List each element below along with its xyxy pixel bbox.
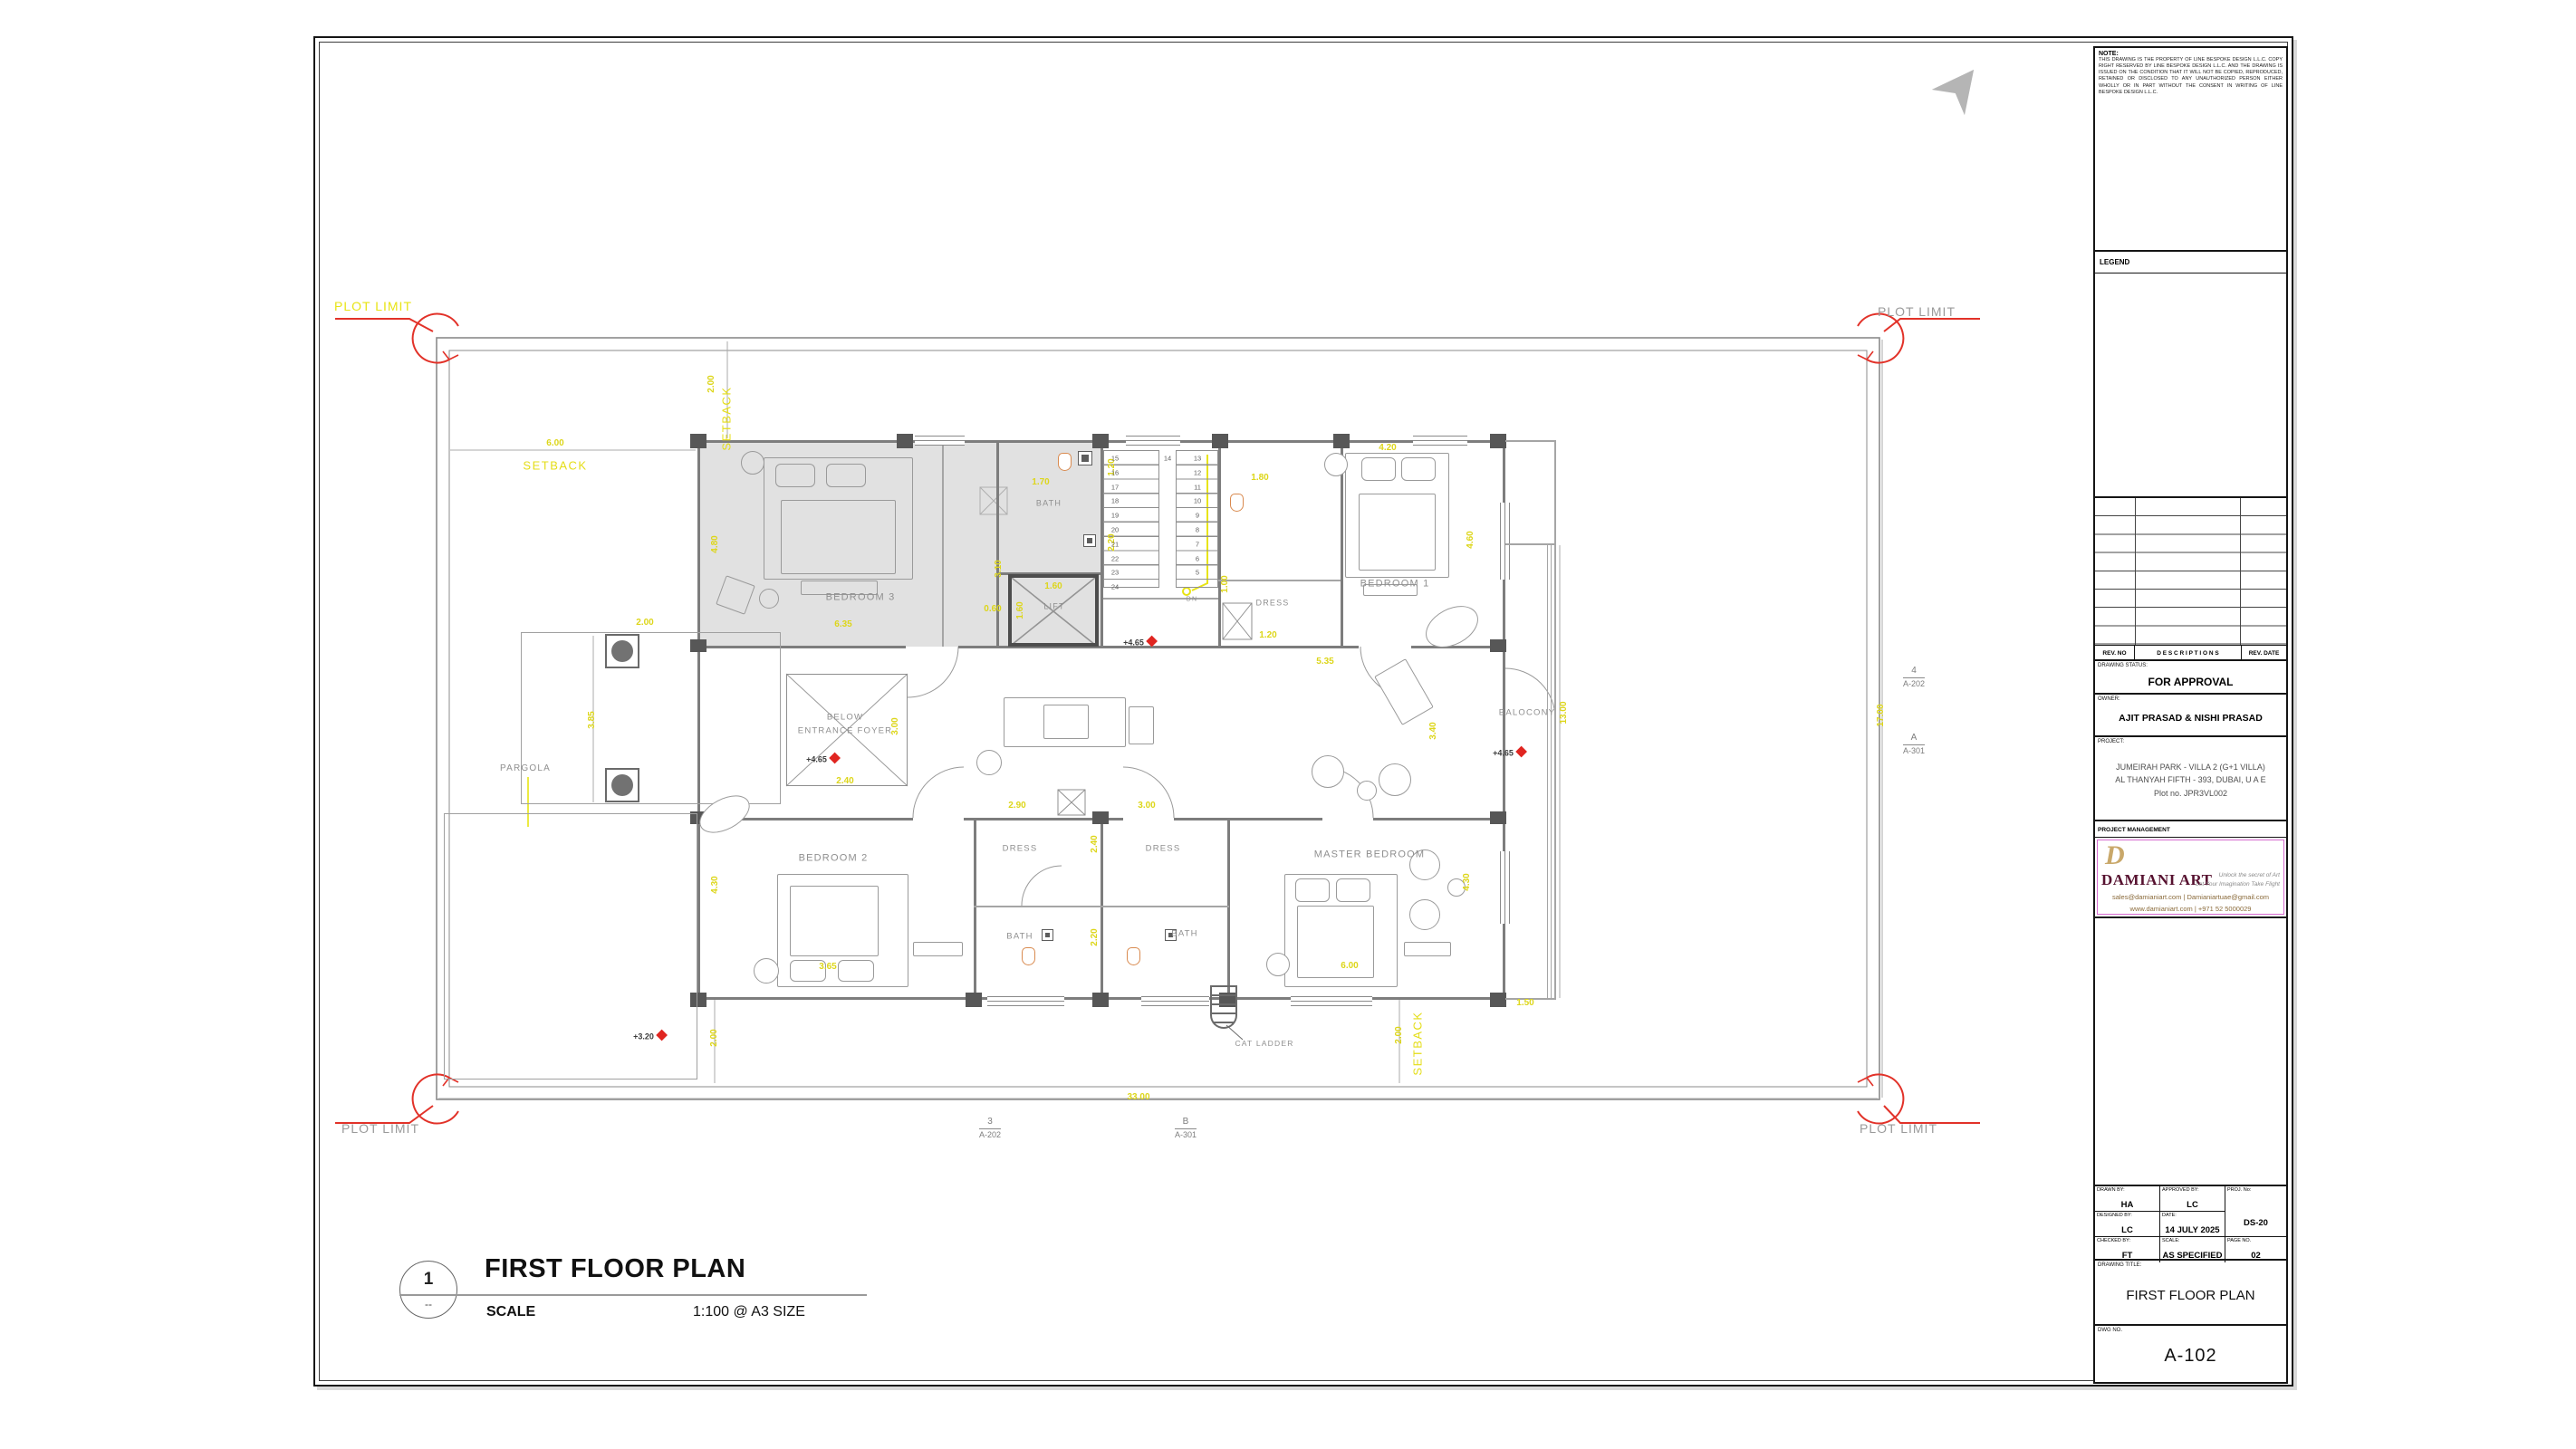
drawing-title-box: DRAWING TITLE: FIRST FLOOR PLAN xyxy=(2095,1261,2286,1326)
dimension-label: 33.00 xyxy=(1127,1093,1149,1102)
wall xyxy=(1101,906,1229,907)
toilet xyxy=(1058,453,1072,471)
level-marker: +3.20 xyxy=(633,1032,666,1041)
stool xyxy=(759,589,779,609)
window xyxy=(1500,851,1510,924)
stair-number: 17 xyxy=(1111,484,1119,491)
dimension-label: 2.00 xyxy=(707,375,716,392)
side-unit xyxy=(1129,706,1154,744)
pergola-column xyxy=(605,634,639,668)
room-label: DRESS xyxy=(1255,600,1289,608)
section-marker: AA-301 xyxy=(1903,734,1925,755)
window xyxy=(1413,436,1467,446)
dimension-label: 1.50 xyxy=(1516,999,1533,1008)
column xyxy=(897,434,913,448)
pillow xyxy=(838,960,874,982)
dimension-label: 2.40 xyxy=(836,777,853,786)
personnel-table: DRAWN BY:HA APPROVED BY:LC PROJ. No:DS-2… xyxy=(2095,1185,2286,1261)
room-label: BEDROOM 2 xyxy=(799,854,869,864)
room-label: BATH xyxy=(1036,500,1062,508)
view-number-bubble: 1 -- xyxy=(399,1261,457,1319)
revision-rows xyxy=(2095,498,2286,645)
approved-by-cell: APPROVED BY:LC xyxy=(2160,1186,2225,1212)
drawn-by-cell: DRAWN BY:HA xyxy=(2095,1186,2160,1212)
stair-number: 10 xyxy=(1194,498,1201,505)
proj-no-cell: PROJ. No:DS-20 xyxy=(2225,1186,2286,1237)
view-number-dash: -- xyxy=(400,1298,457,1310)
dimension-label: 6.00 xyxy=(1341,962,1358,971)
pillow xyxy=(1336,878,1370,902)
drawing-status-value: FOR APPROVAL xyxy=(2095,676,2286,688)
dimension-label: 2.00 xyxy=(1395,1026,1404,1043)
dimension-label: 3.85 xyxy=(588,711,597,728)
room-label: MASTER BEDROOM xyxy=(1314,850,1426,860)
wall xyxy=(1373,818,1505,820)
pillow xyxy=(775,464,815,487)
view-number: 1 xyxy=(400,1270,457,1290)
round-table xyxy=(1357,781,1377,801)
dimension-label: 3.40 xyxy=(1429,722,1438,739)
dimension-label: 1.60 xyxy=(1016,601,1025,619)
owner-label: OWNER: xyxy=(2098,696,2120,702)
side-table xyxy=(1324,453,1348,476)
dimension-label: 1.80 xyxy=(1251,474,1268,483)
level-diamond-icon xyxy=(1515,746,1527,758)
wall xyxy=(1101,818,1103,1000)
dimension-label: 3.00 xyxy=(1138,801,1155,811)
level-diamond-icon xyxy=(1146,636,1158,648)
balcony-rail xyxy=(1551,543,1552,1000)
window xyxy=(1126,436,1180,446)
shower-drain xyxy=(1078,451,1092,465)
column xyxy=(1092,811,1109,824)
setback-label: SETBACK xyxy=(721,386,733,450)
note-title: NOTE: xyxy=(2099,51,2283,57)
drawing-title-value: FIRST FLOOR PLAN xyxy=(2095,1288,2286,1303)
stair-number: 21 xyxy=(1111,541,1119,548)
column xyxy=(1212,434,1228,448)
pergola-column xyxy=(605,768,639,802)
dimension-label: 4.80 xyxy=(711,535,720,552)
room-label: CAT LADDER xyxy=(1235,1040,1293,1048)
window xyxy=(987,996,1064,1006)
dimension-label: 4.20 xyxy=(1379,444,1396,453)
wall xyxy=(1218,440,1221,647)
wall xyxy=(1218,580,1341,581)
project-label: PROJECT: xyxy=(2098,739,2124,744)
dimension-label: 2.40 xyxy=(1091,835,1100,852)
dimension-label: 4.60 xyxy=(1466,531,1475,548)
dimension-label: 3.65 xyxy=(819,963,836,972)
balcony-rail xyxy=(1554,543,1556,1000)
note-box: NOTE: THIS DRAWING IS THE PROPERTY OF LI… xyxy=(2095,48,2286,252)
terrace-edge xyxy=(1505,440,1556,442)
damiani-email: sales@damianiart.com | Damianiartuae@gma… xyxy=(2098,893,2283,901)
stair-number: 15 xyxy=(1111,455,1119,462)
owner-box: OWNER: AJIT PRASAD & NISHI PRASAD xyxy=(2095,695,2286,737)
project-box: PROJECT: JUMEIRAH PARK - VILLA 2 (G+1 VI… xyxy=(2095,737,2286,821)
plot-limit-label: PLOT LIMIT xyxy=(341,1122,419,1135)
project-management-label: PROJECT MANAGEMENT xyxy=(2095,821,2286,838)
mattress xyxy=(1297,906,1374,978)
sofa-cushion xyxy=(1043,705,1089,739)
view-scale-label: SCALE xyxy=(486,1304,535,1320)
dimension-label: 2.00 xyxy=(636,619,653,628)
stair-number: 9 xyxy=(1196,512,1199,519)
level-marker: +4.65 xyxy=(1493,748,1525,758)
dimension-label: 4.30 xyxy=(711,876,720,893)
armchair xyxy=(1409,899,1440,930)
level-marker: +4.65 xyxy=(806,754,839,764)
room-label: BELOW xyxy=(827,713,863,722)
room-label: DN xyxy=(1187,597,1198,603)
view-title-rule xyxy=(399,1294,867,1296)
section-marker: 4A-202 xyxy=(1903,667,1925,688)
checked-by-cell: CHECKED BY:FT xyxy=(2095,1237,2160,1262)
column xyxy=(1092,993,1109,1007)
mattress xyxy=(781,500,896,574)
armchair xyxy=(1379,763,1411,796)
setback-label: SETBACK xyxy=(523,460,587,472)
mattress xyxy=(790,886,879,956)
stair-number: 19 xyxy=(1111,512,1119,519)
stair-number: 18 xyxy=(1111,498,1119,505)
dimension-label: 2.00 xyxy=(710,1029,719,1046)
stair-number: 5 xyxy=(1196,570,1199,577)
pillow xyxy=(1295,878,1330,902)
room-label: LIFT xyxy=(1043,603,1064,611)
stair-number: 11 xyxy=(1194,484,1201,491)
dimension-label: 2.20 xyxy=(1091,928,1100,945)
owner-value: AJIT PRASAD & NISHI PRASAD xyxy=(2095,713,2286,724)
dimension-label: 3.10 xyxy=(995,560,1004,577)
door-swings xyxy=(908,647,1555,906)
view-title: FIRST FLOOR PLAN xyxy=(485,1254,745,1284)
dimension-label: 4.30 xyxy=(1463,873,1472,890)
stair-number: 14 xyxy=(1164,455,1171,462)
stair-number: 22 xyxy=(1111,555,1119,562)
revision-header: REV. NO D E S C R I P T I O N S REV. DAT… xyxy=(2095,645,2286,661)
dimension-label: 1.20 xyxy=(1259,631,1276,640)
column xyxy=(1490,811,1506,824)
damiani-tagline2: Let Your Imagination Take Flight xyxy=(2196,881,2280,888)
section-marker: BA-301 xyxy=(1175,1118,1197,1139)
plot-limit-label: PLOT LIMIT xyxy=(1860,1122,1937,1135)
dimension-label: 13.00 xyxy=(1560,701,1569,724)
pillow xyxy=(826,464,866,487)
window xyxy=(1291,996,1372,1006)
column xyxy=(1490,639,1506,652)
column xyxy=(966,993,982,1007)
project-line1: JUMEIRAH PARK - VILLA 2 (G+1 VILLA) xyxy=(2095,761,2286,773)
room-label: ENTRANCE FOYER xyxy=(798,726,892,735)
stair-number: 12 xyxy=(1194,469,1201,476)
dimension-label: 6.00 xyxy=(546,439,563,448)
drawing-status-box: DRAWING STATUS: FOR APPROVAL xyxy=(2095,661,2286,695)
cat-ladder xyxy=(1210,985,1237,1029)
wall xyxy=(996,440,999,648)
dimension-label: 17.00 xyxy=(1877,704,1886,726)
wall xyxy=(1174,818,1322,820)
terrace-rail xyxy=(1554,440,1556,543)
dimension-label: 1.70 xyxy=(1032,478,1049,487)
stair-number: 7 xyxy=(1196,541,1199,548)
room-label: BEDROOM 1 xyxy=(1360,580,1430,590)
rev-date-header: REV. DATE xyxy=(2241,646,2286,659)
round-table xyxy=(976,750,1002,775)
dimension-label: 0.60 xyxy=(984,605,1001,614)
column xyxy=(1092,434,1109,448)
drawing-status-label: DRAWING STATUS: xyxy=(2098,663,2148,668)
level-diamond-icon xyxy=(656,1030,668,1041)
setback-label: SETBACK xyxy=(1412,1011,1424,1075)
damiani-website: www.damianiart.com | +971 52 5000029 xyxy=(2098,905,2283,913)
room-label: BATH xyxy=(1171,929,1197,938)
dwg-no-label: DWG NO. xyxy=(2098,1328,2122,1333)
column xyxy=(690,434,706,448)
armchair xyxy=(1312,755,1344,788)
damiani-tagline1: Unlock the secret of Art xyxy=(2219,872,2280,878)
side-table xyxy=(1266,953,1290,976)
descriptions-header: D E S C R I P T I O N S xyxy=(2135,646,2241,659)
stair-number: 16 xyxy=(1111,469,1119,476)
wall xyxy=(974,906,1102,907)
column xyxy=(1333,434,1350,448)
note-body: THIS DRAWING IS THE PROPERTY OF LINE BES… xyxy=(2099,57,2283,96)
title-block: NOTE: THIS DRAWING IS THE PROPERTY OF LI… xyxy=(2093,46,2288,1384)
project-line2: AL THANYAH FIFTH - 393, DUBAI, U A E xyxy=(2095,773,2286,786)
stair-number: 20 xyxy=(1111,526,1119,533)
bench xyxy=(1404,942,1451,956)
window xyxy=(1141,996,1209,1006)
dwg-no-value: A-102 xyxy=(2095,1346,2286,1367)
balcony-edge xyxy=(1505,543,1556,545)
side-table xyxy=(741,451,764,475)
pillow xyxy=(1361,457,1396,481)
sink xyxy=(1083,534,1096,547)
wall xyxy=(1227,818,1230,1000)
designed-by-cell: DESIGNED BY:LC xyxy=(2095,1212,2160,1237)
damiani-art-card: D DAMIANI ART Unlock the secret of Art L… xyxy=(2097,840,2284,915)
legend-area xyxy=(2095,273,2286,498)
dimension-label: 3.00 xyxy=(891,717,900,734)
dimension-label: 1.00 xyxy=(1221,575,1230,592)
date-cell: DATE:14 JULY 2025 xyxy=(2160,1212,2225,1237)
dimension-label: 6.35 xyxy=(834,620,851,629)
plot-limit-label: PLOT LIMIT xyxy=(1878,305,1956,318)
pillow xyxy=(1401,457,1436,481)
view-scale-value: 1:100 @ A3 SIZE xyxy=(693,1304,805,1320)
room-label: BEDROOM 3 xyxy=(826,593,896,603)
wall xyxy=(942,440,944,647)
balcony-rail xyxy=(1547,543,1548,1000)
drawing-title-label: DRAWING TITLE: xyxy=(2098,1262,2141,1268)
stair-number: 24 xyxy=(1111,583,1119,590)
window xyxy=(915,436,965,446)
page-no-cell: PAGE NO.02 xyxy=(2225,1237,2286,1262)
bench xyxy=(913,942,963,956)
project-line3: Plot no. JPR3VL002 xyxy=(2095,787,2286,800)
dwg-no-box: DWG NO. A-102 xyxy=(2095,1326,2286,1384)
room-label: BATH xyxy=(1006,932,1033,941)
sink xyxy=(1042,929,1053,941)
level-marker: +4.65 xyxy=(1123,638,1156,648)
stair-number: 13 xyxy=(1194,455,1201,462)
room-label: PARGOLA xyxy=(500,764,551,773)
column xyxy=(1490,993,1506,1007)
stair-number: 8 xyxy=(1196,526,1199,533)
toilet xyxy=(1127,947,1140,965)
stair-number: 6 xyxy=(1196,555,1199,562)
window xyxy=(1500,503,1510,580)
dimension-label: 1.60 xyxy=(1044,582,1062,591)
mattress xyxy=(1359,494,1436,571)
column xyxy=(1490,434,1506,448)
wall xyxy=(974,818,976,1000)
dimension-label: 5.35 xyxy=(1316,657,1333,667)
damiani-logo-icon: D xyxy=(2105,840,2125,871)
stair-number: 23 xyxy=(1111,570,1119,577)
wall xyxy=(1103,598,1218,600)
toilet xyxy=(1230,494,1244,512)
project-management-box: D DAMIANI ART Unlock the secret of Art L… xyxy=(2095,838,2286,918)
plot-limit-label: PLOT LIMIT xyxy=(334,300,412,312)
side-table xyxy=(754,958,779,984)
level-diamond-icon xyxy=(829,753,841,764)
legend-header: LEGEND xyxy=(2095,252,2286,273)
section-marker: 3A-202 xyxy=(979,1118,1001,1139)
rev-no-header: REV. NO xyxy=(2095,646,2135,659)
scale-cell: SCALE:AS SPECIFIED xyxy=(2160,1237,2225,1262)
room-label: DRESS xyxy=(1003,844,1038,853)
dimension-label: 2.90 xyxy=(1008,801,1025,811)
room-label: BALOCONY xyxy=(1499,708,1555,717)
pergola-outline xyxy=(521,632,781,804)
room-label: DRESS xyxy=(1146,844,1181,853)
toilet xyxy=(1022,947,1035,965)
